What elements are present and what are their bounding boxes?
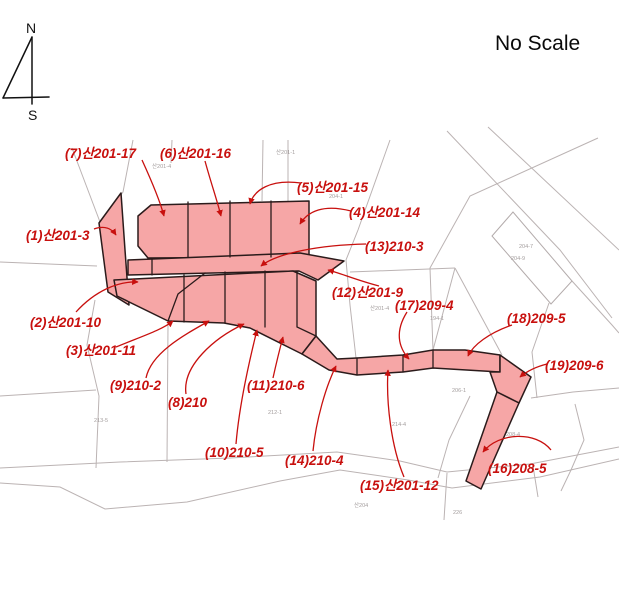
bg-label: 산201-4	[370, 304, 389, 312]
parcel-label-6: (6)산201-16	[160, 146, 231, 161]
compass-diagonal	[3, 37, 32, 98]
parcel-label-9: (9)210-2	[110, 378, 162, 393]
arrow-8	[186, 324, 244, 394]
arrow-14	[313, 366, 336, 451]
parcel-shape-top-row	[138, 201, 309, 258]
parcel-label-11: (11)210-6	[247, 378, 305, 393]
parcel-label-14: (14)210-4	[285, 453, 344, 468]
parcel-label-16: (16)208-5	[488, 461, 547, 476]
arrow-11	[273, 337, 283, 378]
parcel-label-15: (15)산201-12	[360, 478, 439, 493]
highlighted-parcels	[99, 193, 531, 489]
map-canvas: 산201-4 산201-1 204-1 204-7 204-9 산201-4 1…	[0, 0, 619, 600]
bg-label: 206-1	[452, 388, 466, 394]
parcel-label-8: (8)210	[168, 395, 208, 410]
parcel-label-3: (3)산201-11	[66, 343, 136, 358]
parcel-label-13: (13)210-3	[365, 239, 424, 254]
bg-label: 204-7	[519, 244, 533, 250]
arrow-12	[328, 270, 379, 286]
parcel-label-12: (12)산201-9	[332, 285, 403, 300]
parcel-label-5: (5)산201-15	[297, 180, 368, 195]
bg-label: 산201-4	[152, 162, 171, 170]
bg-label: 214-4	[392, 422, 406, 428]
parcel-label-2: (2)산201-10	[30, 315, 101, 330]
parcel-label-1: (1)산201-3	[26, 228, 90, 243]
parcel-label-4: (4)산201-14	[349, 205, 420, 220]
parcel-label-19: (19)209-6	[545, 358, 604, 373]
parcel-label-10: (10)210-5	[205, 445, 264, 460]
compass-base	[3, 97, 49, 98]
arrow-9	[146, 321, 209, 378]
arrow-17	[399, 312, 409, 359]
parcel-label-17: (17)209-4	[395, 298, 454, 313]
bg-label: 산204	[354, 501, 368, 509]
compass-south-label: S	[28, 107, 37, 123]
bg-label: 194-1	[430, 316, 444, 322]
no-scale-label: No Scale	[495, 32, 580, 55]
north-arrow: N S	[3, 20, 49, 123]
background-long-parcel	[492, 212, 572, 304]
bg-label: 226	[453, 510, 462, 516]
parcel-shape-road-strip	[302, 336, 500, 375]
bg-label: 204-9	[511, 256, 525, 262]
parcel-label-7: (7)산201-17	[65, 146, 137, 161]
parcel-label-18: (18)209-5	[507, 311, 566, 326]
bg-label: 산201-1	[276, 148, 295, 156]
bg-label: 212-1	[268, 410, 282, 416]
compass-north-label: N	[26, 20, 36, 36]
cadastral-map-figure: 산201-4 산201-1 204-1 204-7 204-9 산201-4 1…	[0, 0, 619, 600]
bg-label: 213-5	[94, 418, 108, 424]
